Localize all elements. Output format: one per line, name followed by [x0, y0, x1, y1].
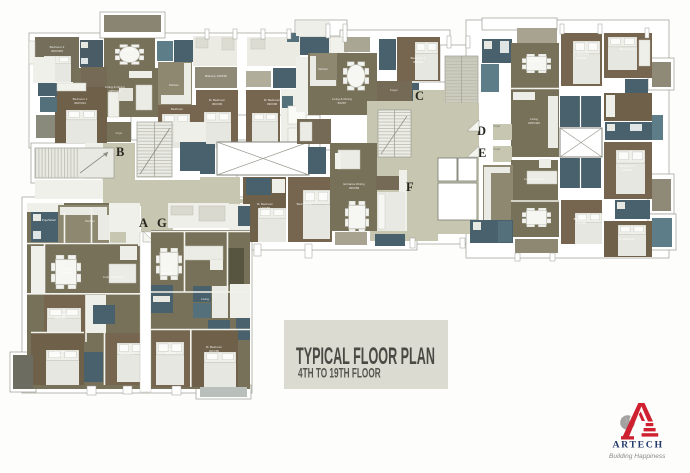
svg-text:170X96: 170X96: [622, 168, 633, 172]
svg-text:300X96: 300X96: [576, 56, 587, 60]
svg-text:A: A: [139, 216, 148, 230]
svg-text:Living: Living: [201, 297, 209, 301]
svg-text:Kitchen: Kitchen: [318, 67, 328, 71]
svg-text:295X420: 295X420: [109, 89, 121, 93]
svg-text:295X420: 295X420: [528, 121, 540, 125]
svg-text:Foyer: Foyer: [390, 88, 398, 92]
svg-text:M. Bedroom: M. Bedroom: [619, 237, 636, 241]
svg-text:290X89: 290X89: [349, 186, 360, 190]
svg-text:300X96: 300X96: [212, 102, 223, 106]
svg-text:Bedroom 1: Bedroom 1: [297, 202, 312, 206]
svg-text:300X28: 300X28: [55, 316, 66, 320]
svg-text:Foyer: Foyer: [494, 124, 501, 128]
svg-text:Balcony 140X30: Balcony 140X30: [205, 74, 227, 78]
svg-text:E: E: [478, 146, 486, 160]
svg-text:4TH TO 19TH FLOOR: 4TH TO 19TH FLOOR: [298, 367, 381, 381]
svg-text:Bedroom 2: Bedroom 2: [120, 352, 135, 356]
svg-text:170X85: 170X85: [576, 221, 587, 225]
svg-text:Building Happiness: Building Happiness: [609, 453, 666, 460]
svg-text:Living & Dining: Living & Dining: [524, 177, 544, 181]
svg-text:300X30: 300X30: [413, 60, 424, 64]
svg-text:Living & Dining: Living & Dining: [103, 275, 123, 279]
svg-text:Foyer: Foyer: [494, 147, 501, 151]
svg-text:140X86: 140X86: [260, 206, 271, 210]
svg-text:ARTECH: ARTECH: [613, 440, 664, 451]
svg-text:330X96: 330X96: [267, 102, 278, 106]
svg-text:292X85: 292X85: [162, 271, 173, 275]
svg-text:Living & Dining: Living & Dining: [524, 59, 544, 63]
svg-text:292X85: 292X85: [62, 271, 73, 275]
svg-text:Foyer: Foyer: [116, 131, 123, 135]
svg-text:Kitchen: Kitchen: [169, 83, 179, 87]
svg-text:F: F: [406, 180, 414, 194]
svg-text:B: B: [116, 145, 124, 159]
svg-text:C: C: [415, 89, 424, 103]
svg-text:300X312: 300X312: [74, 101, 86, 105]
svg-text:60X87: 60X87: [338, 101, 347, 105]
svg-text:300X28: 300X28: [165, 351, 176, 355]
svg-text:300X80: 300X80: [209, 349, 220, 353]
svg-text:Kitchen: Kitchen: [85, 219, 95, 223]
svg-text:300X80: 300X80: [53, 353, 64, 357]
svg-text:Bedroom: Bedroom: [171, 107, 184, 111]
svg-text:Dining: Dining: [125, 48, 134, 52]
svg-text:Puja/Wash: Puja/Wash: [42, 218, 57, 222]
svg-text:300X305: 300X305: [51, 49, 63, 53]
svg-text:Bedroom 2: Bedroom 2: [620, 47, 635, 51]
svg-text:G: G: [157, 216, 167, 230]
